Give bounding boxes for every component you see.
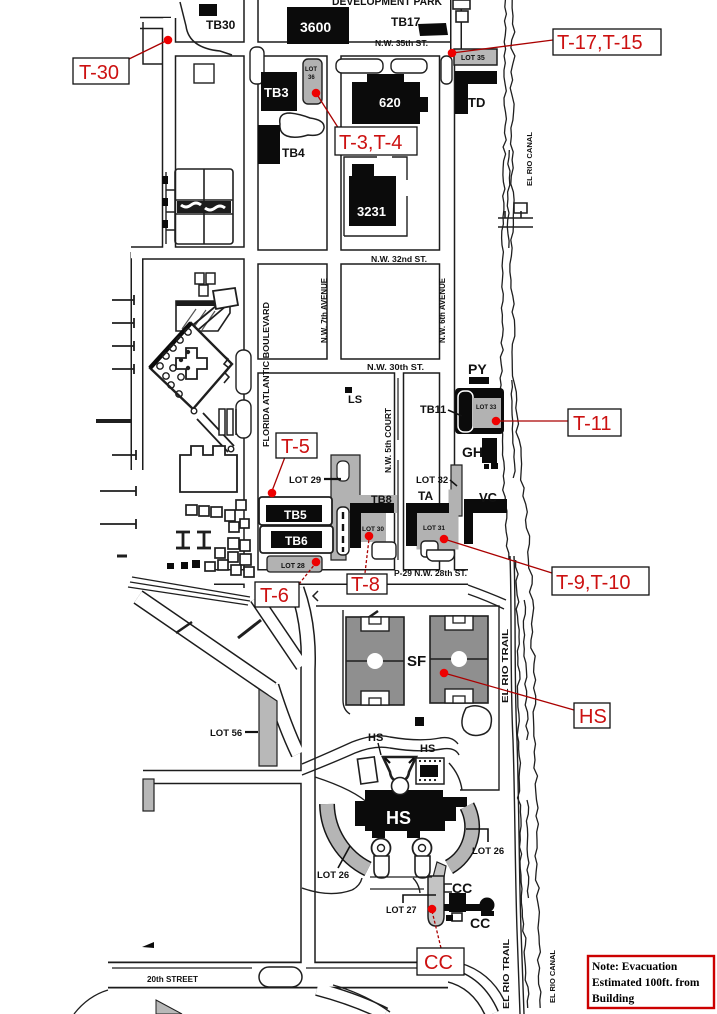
svg-text:TD: TD (468, 95, 485, 110)
svg-text:LOT 29: LOT 29 (289, 475, 321, 486)
svg-text:DEVELOPMENT PARK: DEVELOPMENT PARK (332, 0, 442, 8)
svg-text:LOT 32: LOT 32 (416, 475, 448, 486)
svg-text:FLORIDA ATLANTIC BOULEVARD: FLORIDA ATLANTIC BOULEVARD (262, 302, 271, 447)
svg-text:GH: GH (462, 444, 483, 460)
svg-text:LOT 26: LOT 26 (317, 870, 349, 881)
svg-text:T-3,T-4: T-3,T-4 (339, 132, 402, 154)
svg-text:TB8: TB8 (371, 494, 392, 506)
svg-text:LOT 33: LOT 33 (476, 405, 497, 411)
svg-text:36: 36 (308, 75, 315, 81)
svg-text:3231: 3231 (357, 204, 386, 219)
svg-text:N.W. 7th AVENUE: N.W. 7th AVENUE (320, 277, 329, 343)
svg-text:LS: LS (348, 394, 362, 406)
svg-text:HS: HS (386, 808, 411, 828)
svg-text:LOT 56: LOT 56 (210, 728, 242, 739)
svg-text:VC: VC (479, 490, 498, 505)
svg-text:TA: TA (418, 489, 433, 503)
svg-text:EL RIO TRAIL: EL RIO TRAIL (501, 939, 511, 1009)
svg-text:TB4: TB4 (282, 146, 305, 160)
svg-text:LOT 28: LOT 28 (281, 563, 305, 570)
svg-text:P-29 N.W. 28th ST.: P-29 N.W. 28th ST. (394, 569, 467, 578)
svg-text:HS: HS (420, 743, 435, 755)
svg-text:LOT 35: LOT 35 (461, 55, 485, 62)
svg-text:EL RIO CANAL: EL RIO CANAL (527, 131, 534, 186)
svg-text:N.W. 30th ST.: N.W. 30th ST. (367, 363, 424, 372)
svg-text:PY: PY (468, 361, 487, 377)
svg-text:CC: CC (470, 915, 490, 931)
svg-text:Estimated 100ft. from: Estimated 100ft. from (592, 977, 700, 989)
svg-text:T-11: T-11 (573, 413, 612, 435)
svg-text:TB3: TB3 (264, 85, 289, 100)
svg-text:T-8: T-8 (351, 574, 380, 596)
svg-text:LOT 30: LOT 30 (362, 526, 384, 533)
svg-text:Note: Evacuation: Note: Evacuation (592, 961, 678, 973)
svg-text:TB17: TB17 (391, 15, 421, 29)
svg-text:HS: HS (368, 732, 383, 744)
svg-text:TB30: TB30 (206, 18, 236, 32)
svg-text:3600: 3600 (300, 19, 331, 35)
svg-text:20th STREET: 20th STREET (147, 975, 198, 984)
svg-text:CC: CC (424, 952, 453, 974)
svg-text:LOT 27: LOT 27 (386, 905, 417, 915)
svg-text:T-30: T-30 (79, 62, 119, 84)
svg-text:T-17,T-15: T-17,T-15 (557, 32, 643, 54)
svg-text:620: 620 (379, 95, 401, 110)
svg-text:SF: SF (407, 653, 426, 670)
svg-text:T-9,T-10: T-9,T-10 (556, 572, 630, 594)
svg-text:N.W. 32nd ST.: N.W. 32nd ST. (371, 255, 427, 264)
svg-text:HS: HS (579, 706, 607, 728)
svg-text:LOT 31: LOT 31 (423, 525, 445, 532)
svg-text:N.W. 6th AVENUE: N.W. 6th AVENUE (438, 277, 447, 343)
svg-text:T-6: T-6 (260, 585, 289, 607)
svg-text:LOT: LOT (305, 67, 317, 73)
svg-text:TB11: TB11 (420, 404, 446, 416)
svg-text:TB6: TB6 (285, 534, 308, 548)
svg-text:Building: Building (592, 993, 634, 1005)
svg-text:T-5: T-5 (281, 436, 310, 458)
svg-text:N.W. 35th ST.: N.W. 35th ST. (375, 39, 428, 48)
svg-text:LOT 26: LOT 26 (472, 846, 504, 857)
svg-text:TB5: TB5 (284, 508, 307, 522)
svg-text:N.W. 5th COURT: N.W. 5th COURT (384, 408, 393, 473)
svg-text:EL RIO CANAL: EL RIO CANAL (550, 949, 557, 1003)
